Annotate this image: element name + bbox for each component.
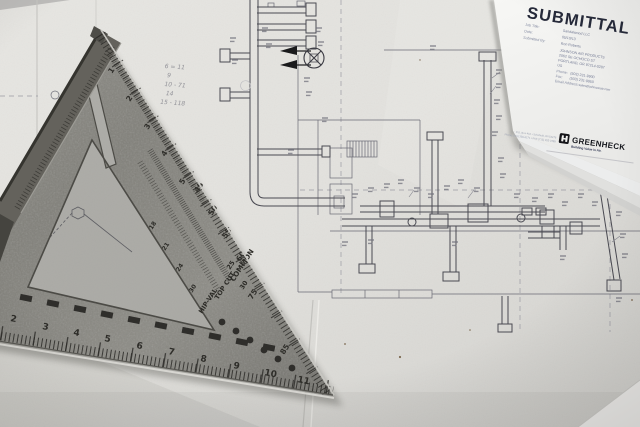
photo-scene: 6 = 11 9 10 - 71 14 15 - 118 SUBMITTAL J… bbox=[0, 0, 640, 427]
vignette-overlay bbox=[0, 0, 640, 427]
